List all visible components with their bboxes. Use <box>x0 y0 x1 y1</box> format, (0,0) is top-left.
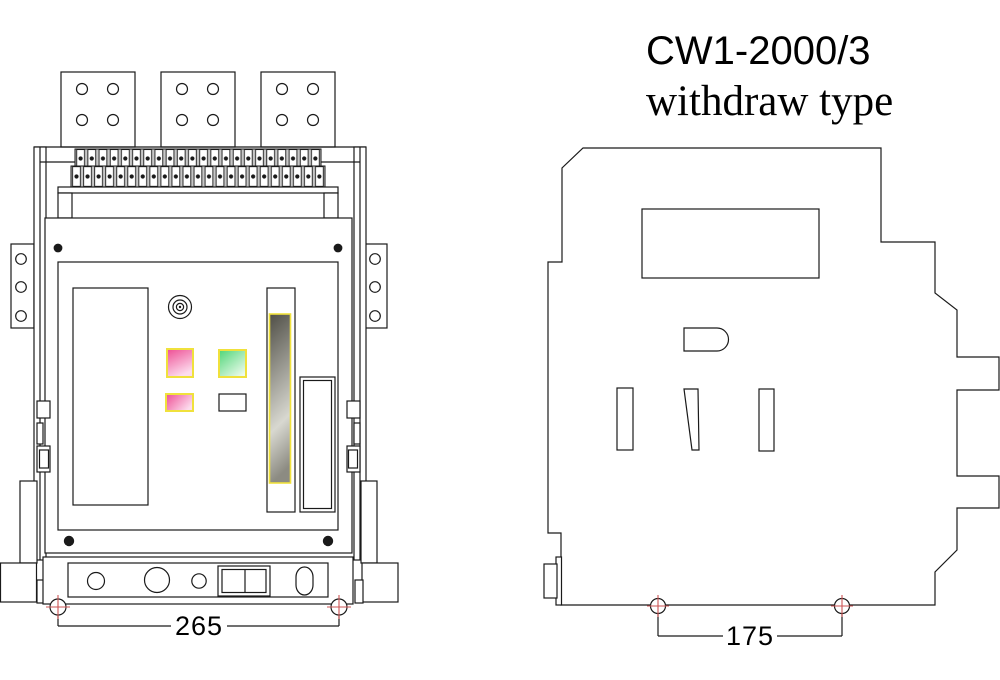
dimension-value: 265 <box>175 611 223 641</box>
foot-notch-right <box>355 580 363 603</box>
vent-slots <box>617 388 774 451</box>
handle-slot-opening <box>270 314 291 483</box>
on-button-green <box>219 350 246 377</box>
foot-right <box>362 563 398 602</box>
model-number: CW1-2000/3 <box>646 26 893 76</box>
screw <box>54 244 63 253</box>
indicator-pink-small <box>166 394 193 411</box>
foot-block <box>544 564 557 598</box>
indicator-blank <box>219 394 246 411</box>
mounting-bracket-left <box>11 244 34 328</box>
vent-slot <box>617 388 633 450</box>
drawing-title: CW1-2000/3 withdraw type <box>646 26 893 128</box>
clip-slot <box>354 423 360 444</box>
side-foot <box>544 557 562 605</box>
screw <box>64 536 74 546</box>
screw <box>323 536 333 546</box>
side-outline <box>548 148 999 605</box>
nameplate-window <box>642 209 819 278</box>
bracket-plate <box>11 244 34 328</box>
tray-post-right <box>324 193 338 218</box>
foot-step-right <box>361 481 377 563</box>
side-slot-panel <box>300 377 335 512</box>
anchor-crosshairs <box>647 595 853 617</box>
handle-slot <box>267 288 295 512</box>
tray-post-left <box>58 193 72 218</box>
clip-slot <box>37 423 43 444</box>
front-view: 265 <box>1 72 399 641</box>
mounting-bracket-right <box>364 244 387 328</box>
busbar-plate <box>161 72 235 147</box>
busbar-terminal-1 <box>61 72 135 147</box>
bracket-plate <box>364 244 387 328</box>
vent-slot <box>759 389 774 451</box>
secondary-terminal-strip-row2 <box>71 166 325 187</box>
off-button-pink <box>167 349 193 377</box>
type-label: withdraw type <box>646 76 893 128</box>
tray-bar <box>58 187 338 193</box>
vent-slot-slanted <box>684 389 699 450</box>
clip <box>347 401 360 418</box>
foot-left <box>1 563 37 602</box>
busbar-terminal-2 <box>161 72 235 147</box>
technical-drawing-page: 265 175 <box>0 0 1000 680</box>
secondary-terminal-strip-row1 <box>75 149 321 168</box>
screw <box>334 244 343 253</box>
terminal-tray <box>58 187 338 218</box>
side-panel-outer <box>300 377 335 512</box>
busbar-terminal-3 <box>261 72 335 147</box>
busbar-plate <box>261 72 335 147</box>
dimension-175: 175 <box>647 595 853 651</box>
foot-step-left <box>20 481 37 563</box>
handle-cutout <box>684 328 729 351</box>
side-view: 175 <box>544 148 999 651</box>
busbar-plate <box>61 72 135 147</box>
draw-out-carriage <box>43 557 353 604</box>
socket-center <box>179 306 181 308</box>
dimension-value: 175 <box>726 621 774 651</box>
clip <box>37 401 50 418</box>
